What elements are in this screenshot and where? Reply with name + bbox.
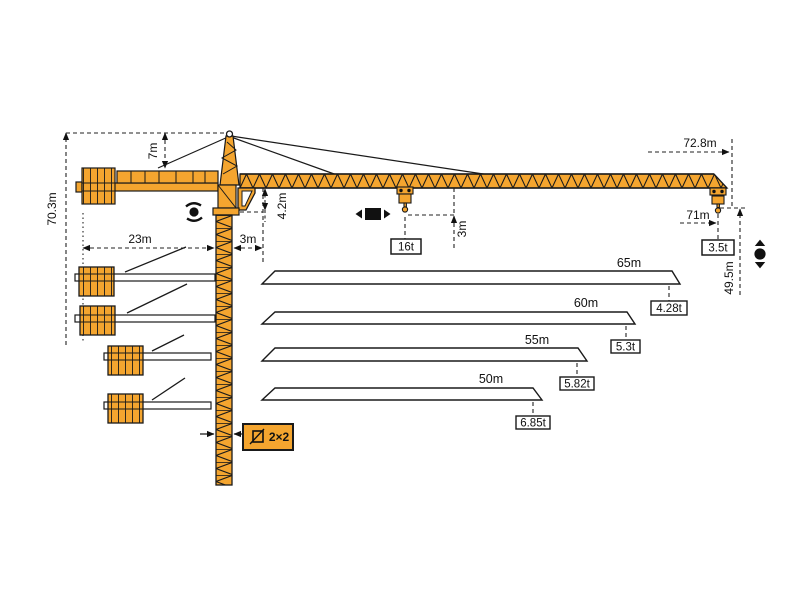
capacity-label: 5.82t <box>564 379 590 391</box>
slew-platform <box>213 208 239 215</box>
load-bar-55m: 55m 5.82t <box>262 333 594 391</box>
max-capacity-callout: 16t <box>391 239 421 254</box>
mast-lattice-overlay <box>216 215 232 485</box>
capacity-label: 4.28t <box>656 303 682 315</box>
hook-height-label: 49.5m <box>722 261 736 294</box>
mast-section-label: 2×2 <box>269 430 290 444</box>
jib-profile-bar <box>262 271 680 284</box>
mast-section-callout: 2×2 <box>200 424 293 450</box>
tip-capacity-label: 3.5t <box>708 243 728 255</box>
hook <box>402 207 407 212</box>
counterweight-row-1 <box>75 247 215 296</box>
counterweight-options <box>75 247 215 423</box>
jib-length-label: 65m <box>617 256 641 270</box>
tower-head <box>220 136 239 185</box>
counterjib-tie <box>158 137 228 168</box>
hoist-up-down-icon <box>754 240 765 269</box>
jib-underside-offset-label: 4.2m <box>275 193 289 220</box>
capacity-label: 5.3t <box>616 342 636 354</box>
counterweight-row-4 <box>104 378 211 423</box>
trolley-travel-icon <box>356 208 391 220</box>
counterweight-stack-top <box>82 168 115 204</box>
slewing-rotation-icon <box>186 203 202 221</box>
counter-jib <box>76 168 218 204</box>
rear-offset-label: 3m <box>240 232 257 246</box>
mid-jib-trolley <box>397 187 413 212</box>
jib-profile-bar <box>262 388 542 400</box>
jib-profile-bar <box>262 348 587 361</box>
max-capacity-label: 16t <box>398 242 415 254</box>
jib-length-label: 50m <box>479 372 503 386</box>
counterjib-radius-label: 23m <box>128 232 151 246</box>
apex-pin <box>227 131 233 137</box>
crane-load-diagram: 65m 4.28t 60m 5.3t 55m 5.82t 50m 6.85t <box>0 0 800 600</box>
load-bar-60m: 60m 5.3t <box>262 296 640 354</box>
jib <box>240 174 727 188</box>
head-height-label: 7m <box>146 143 160 160</box>
capacity-label: 6.85t <box>520 418 546 430</box>
jib-length-label: 55m <box>525 333 549 347</box>
pendant-tie-lines <box>158 136 490 175</box>
load-chart: 65m 4.28t 60m 5.3t 55m 5.82t 50m 6.85t <box>262 256 687 430</box>
hook-radius-label: 71m <box>686 208 709 222</box>
jib-lattice-overlay <box>240 174 727 188</box>
jib-length-label: 60m <box>574 296 598 310</box>
tip-trolley <box>710 188 726 213</box>
load-bar-50m: 50m 6.85t <box>262 372 550 430</box>
hook <box>715 208 720 213</box>
hook-clearance-label: 3m <box>455 221 469 238</box>
jib-profile-bar <box>262 312 635 324</box>
load-bar-65m: 65m 4.28t <box>262 256 687 315</box>
overall-height-label: 70.3m <box>45 192 59 225</box>
hook-stem <box>717 204 719 208</box>
tip-radius-label: 72.8m <box>683 136 716 150</box>
diagram-canvas: 65m 4.28t 60m 5.3t 55m 5.82t 50m 6.85t <box>0 0 800 600</box>
counterweight-row-3 <box>104 335 211 375</box>
jib-tie-long <box>231 136 490 175</box>
jib-tie-short <box>231 137 337 175</box>
counterjib-platform <box>117 171 218 183</box>
tip-capacity-callout: 3.5t <box>702 240 734 255</box>
counterjib-girder-cap <box>76 182 82 192</box>
